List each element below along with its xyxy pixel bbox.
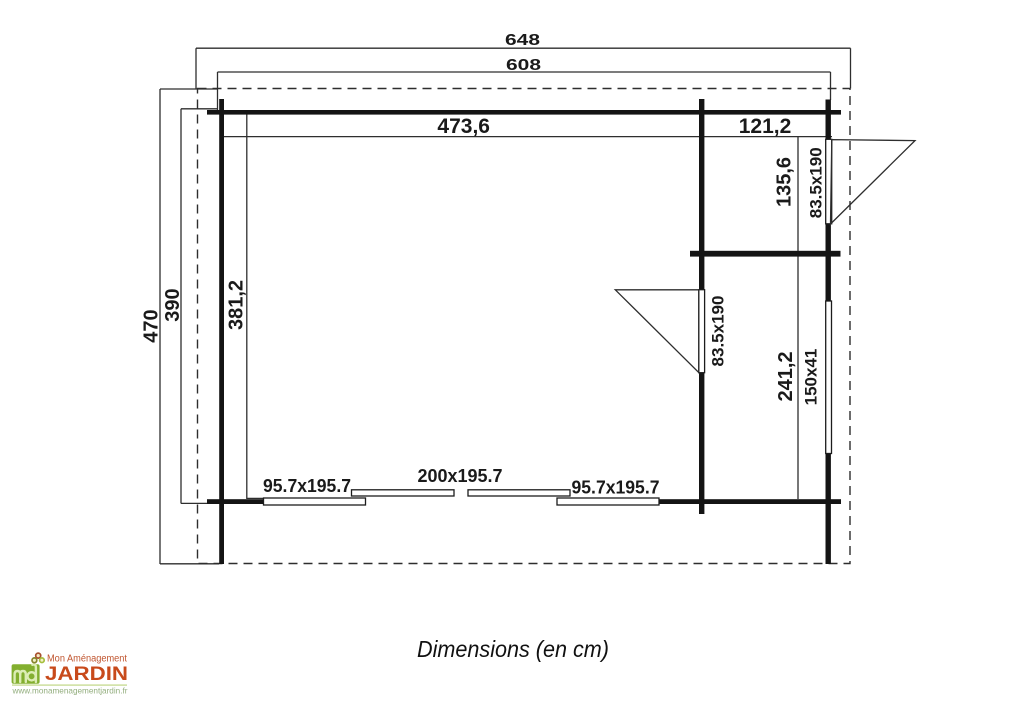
svg-text:83.5x190: 83.5x190 xyxy=(807,147,826,218)
svg-text:200x195.7: 200x195.7 xyxy=(417,466,502,486)
svg-text:95.7x195.7: 95.7x195.7 xyxy=(572,478,660,498)
svg-text:www.monamenagementjardin.fr: www.monamenagementjardin.fr xyxy=(12,685,128,695)
svg-text:648: 648 xyxy=(505,32,540,49)
svg-text:390: 390 xyxy=(162,288,184,321)
svg-text:241,2: 241,2 xyxy=(775,351,797,401)
svg-text:608: 608 xyxy=(506,57,541,74)
svg-text:473,6: 473,6 xyxy=(437,115,490,138)
svg-text:150x41: 150x41 xyxy=(802,349,821,406)
svg-text:83.5x190: 83.5x190 xyxy=(709,296,728,367)
svg-text:121,2: 121,2 xyxy=(739,115,792,138)
svg-text:470: 470 xyxy=(141,309,163,342)
svg-text:135,6: 135,6 xyxy=(774,157,796,207)
svg-text:JARDIN: JARDIN xyxy=(45,663,128,685)
svg-text:95.7x195.7: 95.7x195.7 xyxy=(263,476,351,496)
svg-text:381,2: 381,2 xyxy=(226,280,248,330)
svg-text:Dimensions (en cm): Dimensions (en cm) xyxy=(417,636,609,662)
